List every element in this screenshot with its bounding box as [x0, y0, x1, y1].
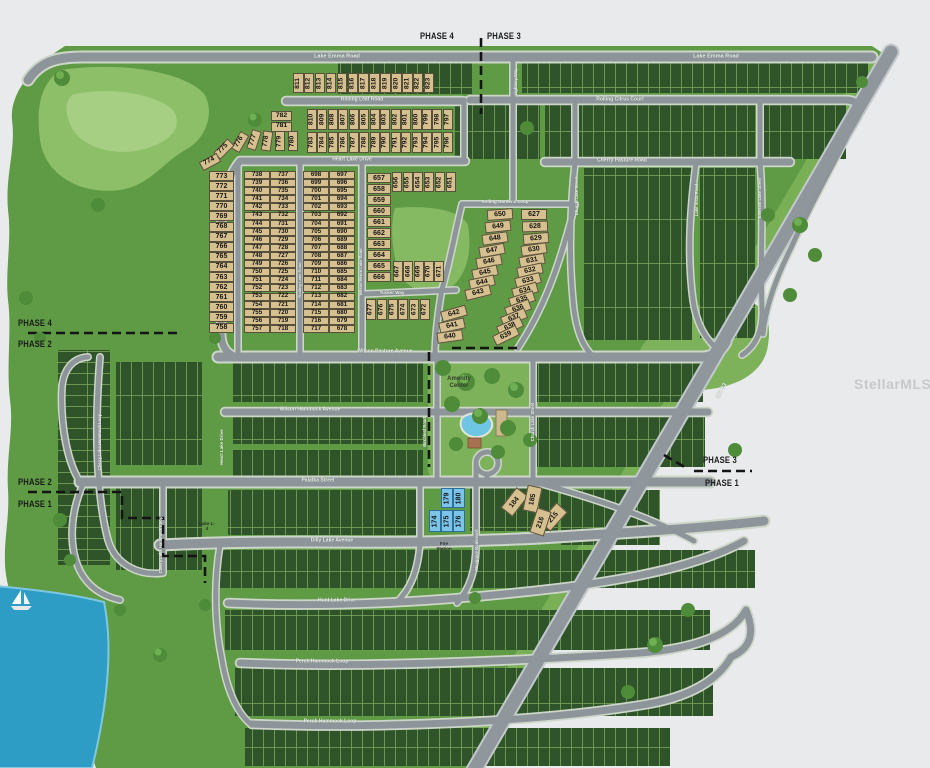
site-plan-image: 8118128138148158168178188198208218228238…	[0, 0, 930, 768]
phase-label-left-lower-bottom: PHASE 1	[18, 499, 52, 509]
phase-label-top-right: PHASE 3	[487, 31, 521, 41]
site-plan-base-map	[0, 0, 930, 768]
cabana	[468, 438, 481, 448]
phase-label-left-upper-bottom: PHASE 2	[18, 339, 52, 349]
phase-label-right-bottom: PHASE 1	[705, 478, 739, 488]
phase-label-right-top: PHASE 3	[703, 455, 737, 465]
phase-label-top-left: PHASE 4	[420, 31, 454, 41]
phase-label-left-upper-top: PHASE 4	[18, 318, 52, 328]
lake-water	[0, 586, 108, 768]
stellar-mls-watermark: StellarMLS	[854, 376, 930, 392]
phase-label-left-lower-top: PHASE 2	[18, 477, 52, 487]
